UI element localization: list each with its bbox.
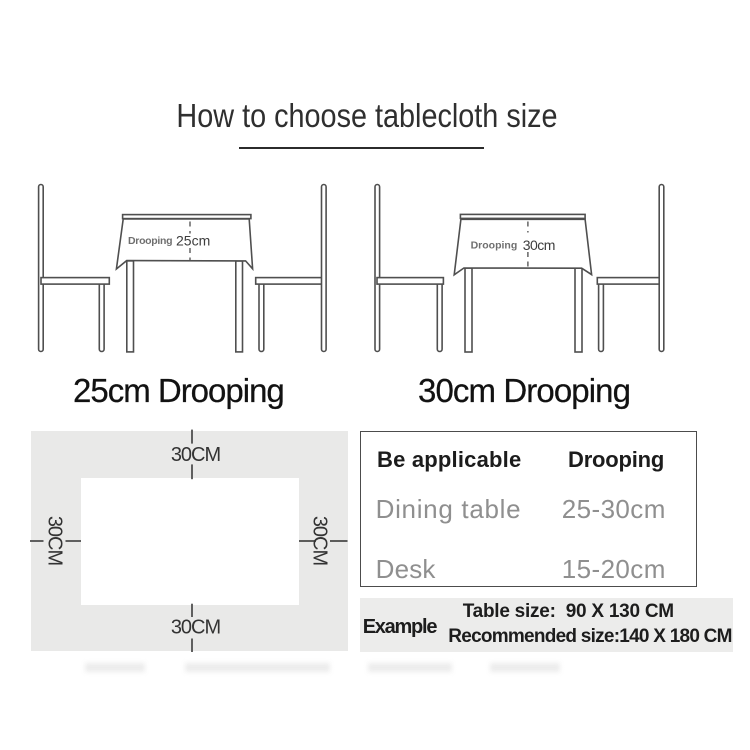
svg-text:30cm: 30cm (523, 237, 555, 253)
svg-text:25cm: 25cm (176, 233, 210, 249)
svg-text:Drooping: Drooping (471, 240, 518, 252)
svg-text:30CM: 30CM (309, 516, 331, 566)
svg-text:30CM: 30CM (44, 516, 66, 566)
svg-text:30CM: 30CM (171, 444, 221, 466)
svg-text:30CM: 30CM (171, 617, 221, 639)
svg-text:Drooping: Drooping (128, 235, 172, 247)
